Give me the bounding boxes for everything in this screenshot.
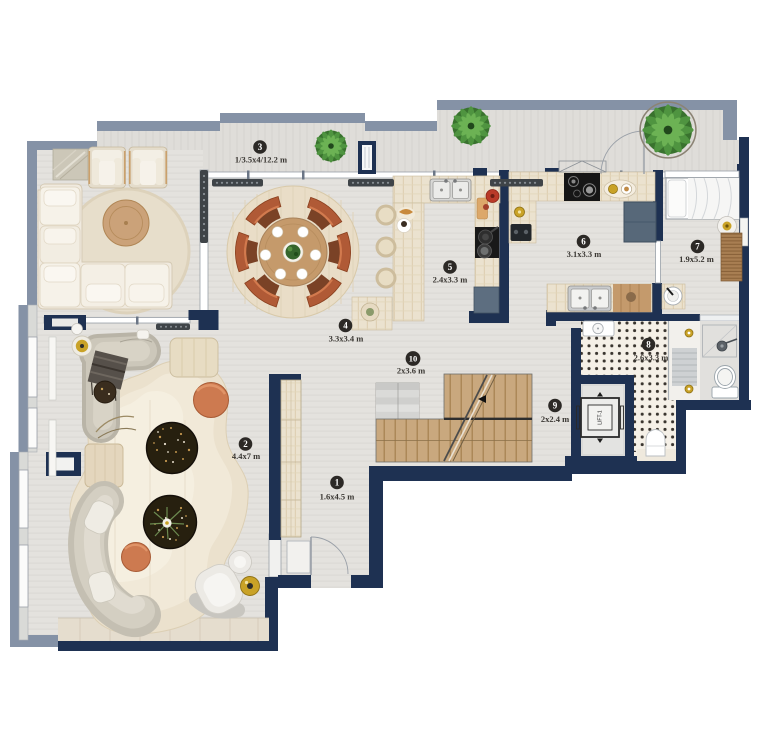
svg-text:1.6x4.5 m: 1.6x4.5 m — [320, 492, 355, 502]
svg-text:2x2.4 m: 2x2.4 m — [541, 414, 569, 424]
svg-text:1.9x5.2 m: 1.9x5.2 m — [679, 254, 714, 264]
svg-text:LIFT-1: LIFT-1 — [597, 410, 603, 425]
svg-text:1: 1 — [335, 478, 340, 488]
svg-text:3.1x3.3 m: 3.1x3.3 m — [567, 249, 602, 259]
svg-text:2x3.6 m: 2x3.6 m — [397, 366, 425, 376]
svg-text:5: 5 — [448, 262, 453, 272]
svg-text:4.4x7 m: 4.4x7 m — [232, 451, 260, 461]
svg-text:10: 10 — [409, 354, 418, 364]
svg-text:2: 2 — [243, 439, 248, 449]
svg-text:8: 8 — [646, 340, 651, 350]
svg-text:2.4x3.3 m: 2.4x3.3 m — [433, 275, 468, 285]
svg-text:7: 7 — [695, 242, 700, 252]
svg-text:1/3.5x4/12.2 m: 1/3.5x4/12.2 m — [235, 155, 287, 165]
svg-text:4: 4 — [343, 321, 348, 331]
svg-text:3: 3 — [258, 142, 263, 152]
svg-text:9: 9 — [553, 401, 558, 411]
svg-text:6: 6 — [581, 237, 586, 247]
svg-text:2.6x3.3 m: 2.6x3.3 m — [634, 353, 669, 363]
svg-text:3.3x3.4 m: 3.3x3.4 m — [329, 334, 364, 344]
